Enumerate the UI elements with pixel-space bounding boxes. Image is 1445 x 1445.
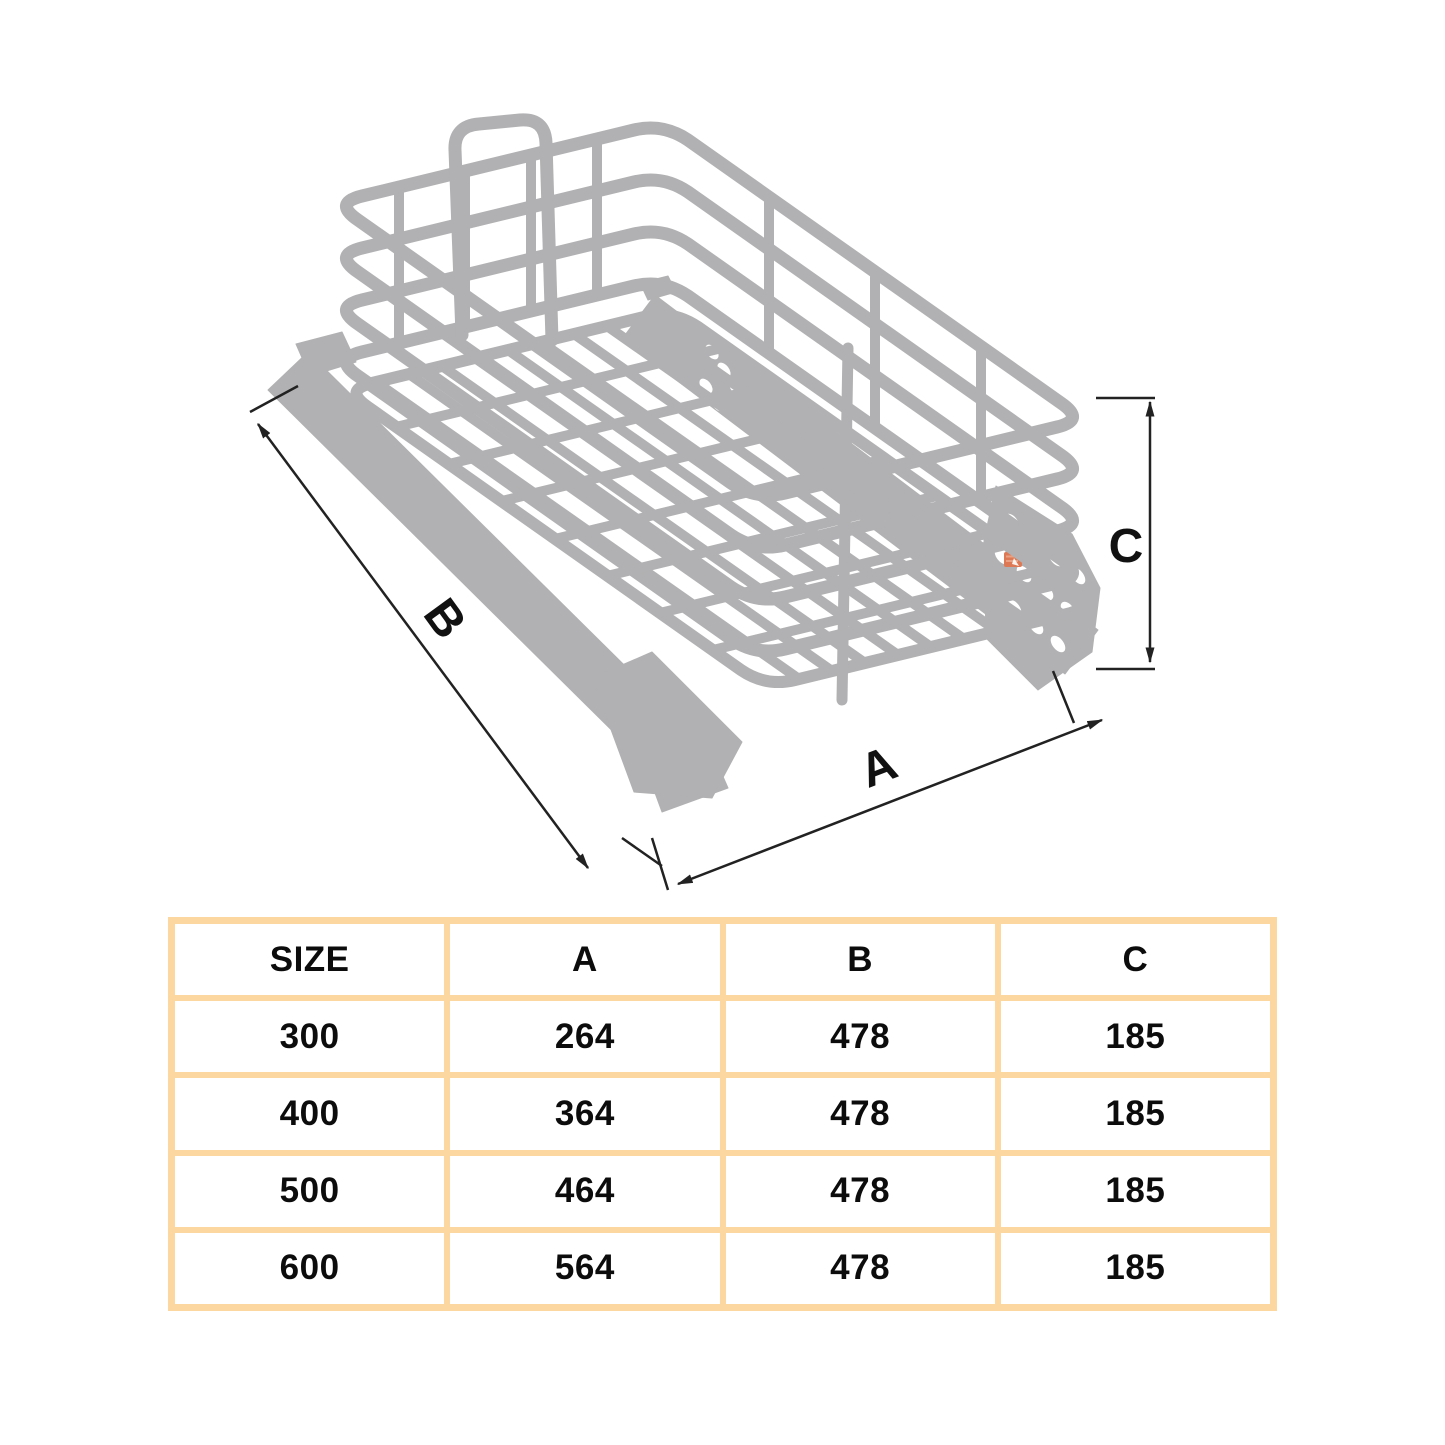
table-cell: 478 xyxy=(726,1156,995,1227)
dimension-c-label: C xyxy=(1109,520,1144,573)
dimension-a-line xyxy=(678,720,1102,884)
basket-dimension-drawing: B A C xyxy=(0,0,1445,915)
table-header-b: B xyxy=(726,924,995,995)
table-cell: 185 xyxy=(1001,1078,1270,1149)
table-cell: 478 xyxy=(726,1001,995,1072)
table-cell: 364 xyxy=(450,1078,719,1149)
page: { "diagram": { "labels": { "width": "A",… xyxy=(0,0,1445,1445)
table-cell: 185 xyxy=(1001,1001,1270,1072)
table-cell: 478 xyxy=(726,1233,995,1304)
table-cell: 185 xyxy=(1001,1233,1270,1304)
table-cell: 600 xyxy=(175,1233,444,1304)
table-cell: 300 xyxy=(175,1001,444,1072)
table-cell: 185 xyxy=(1001,1156,1270,1227)
table-header-c: C xyxy=(1001,924,1270,995)
dimension-a-label: A xyxy=(853,737,904,799)
size-table: SIZE A B C 300 264 478 185 400 364 478 1… xyxy=(168,917,1277,1311)
table-cell: 464 xyxy=(450,1156,719,1227)
table-cell: 564 xyxy=(450,1233,719,1304)
table-header-a: A xyxy=(450,924,719,995)
table-cell: 478 xyxy=(726,1078,995,1149)
table-cell: 264 xyxy=(450,1001,719,1072)
table-cell: 400 xyxy=(175,1078,444,1149)
dimension-b-label: B xyxy=(413,589,476,648)
table-cell: 500 xyxy=(175,1156,444,1227)
front-bracket xyxy=(592,652,742,798)
table-header-size: SIZE xyxy=(175,924,444,995)
